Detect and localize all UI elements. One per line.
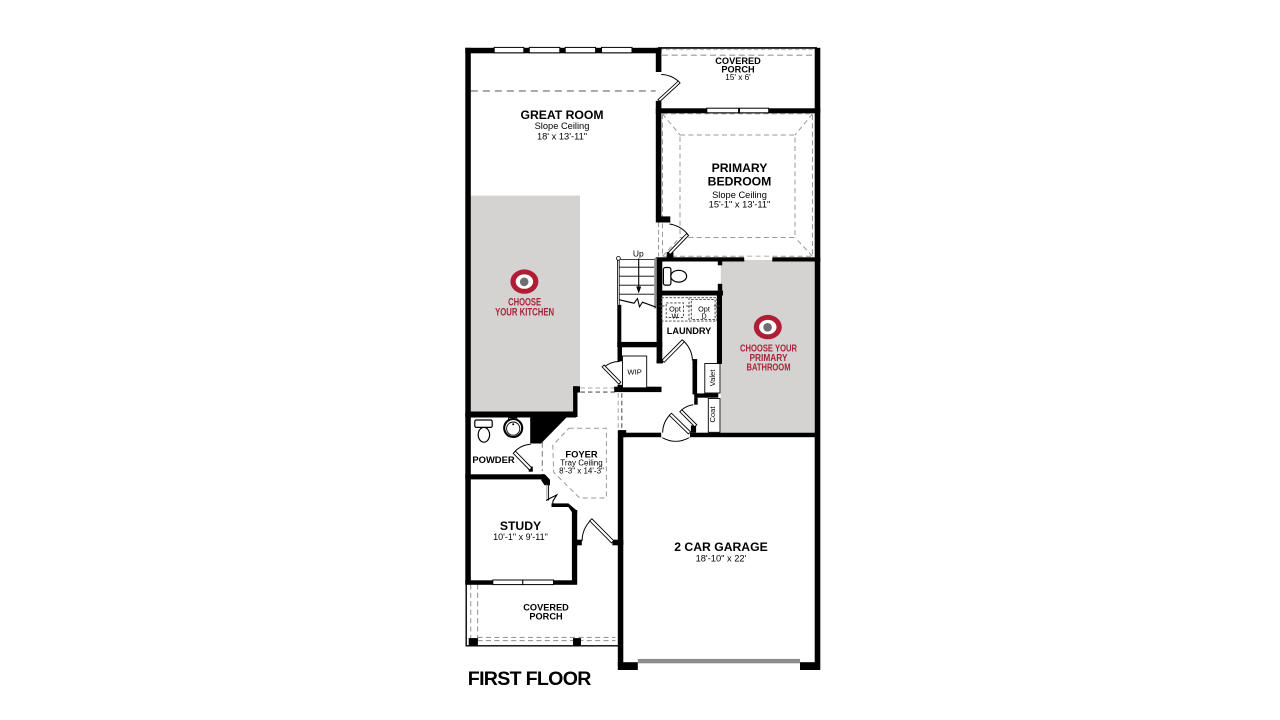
- svg-text:D: D: [701, 312, 706, 321]
- svg-text:Valet: Valet: [708, 369, 717, 387]
- svg-text:8'-3" x 14'-3": 8'-3" x 14'-3": [559, 467, 604, 476]
- svg-text:2 CAR GARAGE: 2 CAR GARAGE: [674, 540, 767, 554]
- svg-text:18' x 13'-11": 18' x 13'-11": [537, 131, 587, 141]
- svg-text:WIP: WIP: [627, 368, 641, 377]
- svg-text:15' x 6': 15' x 6': [725, 73, 751, 82]
- svg-text:15'-1" x 13'-11": 15'-1" x 13'-11": [709, 200, 771, 210]
- svg-text:Slope Ceiling: Slope Ceiling: [712, 190, 767, 200]
- svg-text:YOUR KITCHEN: YOUR KITCHEN: [495, 307, 554, 319]
- svg-text:Up: Up: [633, 248, 644, 258]
- svg-text:PORCH: PORCH: [529, 612, 563, 622]
- svg-text:Coat: Coat: [708, 406, 717, 423]
- svg-text:Slope Ceiling: Slope Ceiling: [535, 121, 590, 131]
- svg-text:18'-10" x 22': 18'-10" x 22': [696, 554, 747, 564]
- svg-text:BEDROOM: BEDROOM: [708, 175, 772, 189]
- svg-text:POWDER: POWDER: [472, 454, 514, 465]
- svg-text:PRIMARY: PRIMARY: [712, 161, 768, 175]
- svg-text:W: W: [672, 312, 679, 321]
- svg-text:LAUNDRY: LAUNDRY: [667, 326, 712, 336]
- svg-text:STUDY: STUDY: [500, 519, 541, 533]
- svg-text:10'-1" x 9'-11": 10'-1" x 9'-11": [493, 532, 548, 542]
- svg-text:FIRST FLOOR: FIRST FLOOR: [468, 668, 591, 690]
- svg-text:GREAT ROOM: GREAT ROOM: [520, 108, 603, 122]
- svg-text:BATHROOM: BATHROOM: [747, 362, 791, 373]
